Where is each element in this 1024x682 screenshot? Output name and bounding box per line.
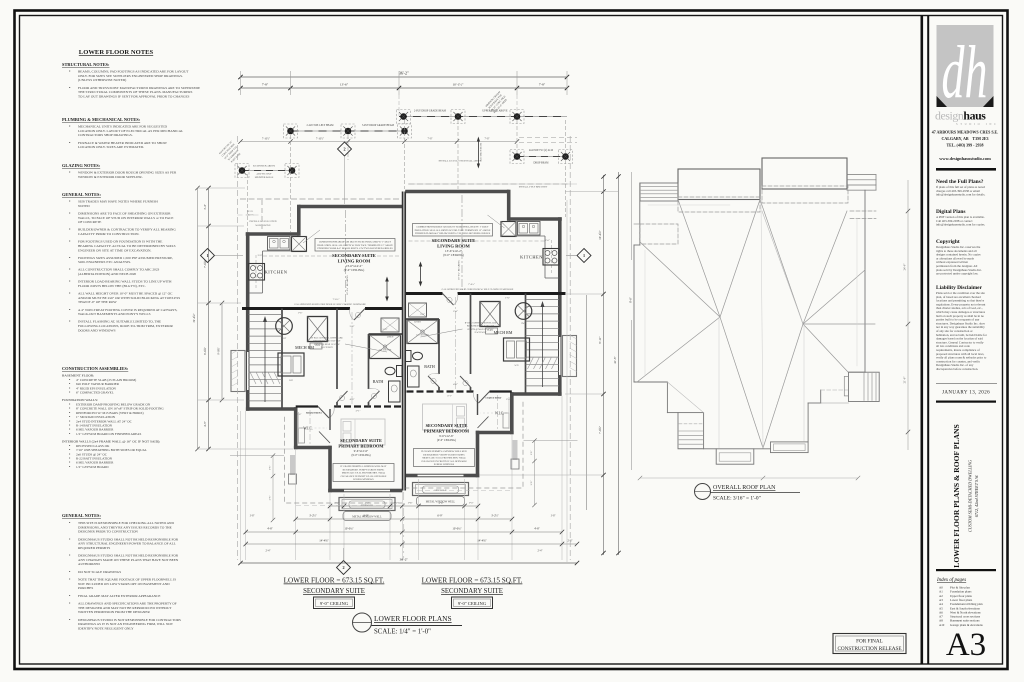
svg-text:JOINTS @ MAX 15'-0" OC: JOINTS @ MAX 15'-0" OC	[314, 343, 341, 346]
svg-text:7'-8": 7'-8"	[262, 83, 269, 87]
svg-text:FOR FINAL: FOR FINAL	[856, 639, 883, 645]
svg-text:(9'-0" CEILING): (9'-0" CEILING)	[443, 253, 464, 257]
svg-text:GENERAL NOTES:: GENERAL NOTES:	[62, 513, 101, 518]
svg-text:4'-8": 4'-8"	[534, 527, 540, 531]
svg-text:ABOVE: ABOVE	[246, 214, 255, 217]
svg-text:AUTHORIZED: AUTHORIZED	[78, 562, 100, 566]
svg-text:7'-0¾": 7'-0¾"	[598, 425, 602, 434]
svg-text:W.I.C.: W.I.C.	[303, 427, 312, 431]
svg-text:W/D: W/D	[515, 365, 519, 367]
svg-text:BE REQUIRED. VERIFY EGRESS SIZ: BE REQUIRED. VERIFY EGRESS SIZING	[423, 454, 465, 456]
svg-text:1'-6": 1'-6"	[298, 312, 303, 315]
svg-text:LIVING ROOM: LIVING ROOM	[437, 244, 470, 249]
svg-text:FOUNDATION WALLS:: FOUNDATION WALLS:	[62, 398, 98, 402]
svg-text:2'-8": 2'-8"	[350, 325, 355, 328]
svg-text:DECK: DECK	[247, 211, 254, 213]
svg-text:9'-6"x12'-6": 9'-6"x12'-6"	[439, 434, 454, 438]
svg-text:WALK-OUT BASEMENTS AND PONY'S: WALK-OUT BASEMENTS AND PONY'S WELLS	[78, 312, 151, 316]
svg-text:2x6 @ 16" (UNO): 2x6 @ 16" (UNO)	[485, 397, 501, 400]
svg-text:24'-0": 24'-0"	[904, 264, 907, 271]
svg-text:10'-0¼": 10'-0¼"	[452, 527, 461, 531]
svg-text:2: 2	[342, 565, 344, 570]
svg-text:3'-1": 3'-1"	[356, 410, 361, 413]
svg-text:DESIGNER PRIOR TO CONSTRUCTION: DESIGNER PRIOR TO CONSTRUCTION	[78, 530, 138, 534]
svg-text:IDENTIFY/NOTE NEGLIGENT ONLY: IDENTIFY/NOTE NEGLIGENT ONLY	[78, 627, 134, 631]
svg-text:1'-8": 1'-8"	[269, 466, 272, 471]
svg-text:7'-8": 7'-8"	[485, 138, 490, 141]
svg-text:(9'-0" CEILING): (9'-0" CEILING)	[344, 268, 365, 272]
svg-text:A3: A3	[946, 627, 986, 663]
svg-text:PORCHES: PORCHES	[78, 586, 93, 590]
svg-text:GLAZING NOTES:: GLAZING NOTES:	[62, 163, 101, 168]
svg-text:OVERALL ROOF PLAN: OVERALL ROOF PLAN	[713, 485, 776, 491]
svg-text:(UNLESS OTHERWISE NOTED): (UNLESS OTHERWISE NOTED)	[78, 78, 126, 82]
svg-text:2-2x8 TOP 2-PLY BEAM: 2-2x8 TOP 2-PLY BEAM	[307, 124, 335, 127]
svg-text:14'-4¾": 14'-4¾"	[477, 539, 487, 543]
svg-text:2'-0": 2'-0"	[545, 239, 550, 242]
svg-text:LIVING ROOM: LIVING ROOM	[338, 259, 371, 264]
svg-text:are protected under copyright: are protected under copyright law.	[936, 272, 979, 276]
svg-text:2'-4": 2'-4"	[266, 550, 271, 553]
svg-text:INTERIOR WALLS (2x4 FRAME WALL: INTERIOR WALLS (2x4 FRAME WALL @ 16" OC …	[62, 440, 160, 444]
svg-text:BATH: BATH	[373, 379, 384, 384]
svg-text:EACH WAY: EACH WAY	[475, 331, 487, 334]
svg-text:3-PLY DROP GRADE BEAM: 3-PLY DROP GRADE BEAM	[362, 124, 395, 127]
svg-text:MECH RM: MECH RM	[494, 330, 513, 335]
svg-text:THAN 8'-0" OF THE ROW: THAN 8'-0" OF THE ROW	[78, 300, 117, 304]
svg-text:1'-8": 1'-8"	[530, 451, 533, 456]
svg-text:36'-2": 36'-2"	[399, 71, 409, 76]
svg-text:CONTRACTORS SHOP DRAWINGS.: CONTRACTORS SHOP DRAWINGS.	[78, 133, 133, 137]
svg-text:PRIMARY BEDROOM: PRIMARY BEDROOM	[424, 429, 470, 434]
svg-text:DOORS AND WINDOWS: DOORS AND WINDOWS	[78, 328, 116, 332]
svg-text:NOTED: NOTED	[78, 204, 90, 208]
svg-text:3'-2½": 3'-2½"	[309, 515, 316, 518]
svg-text:W.I.C.: W.I.C.	[495, 412, 504, 416]
svg-text:PLUMBING & MECHANICAL NOTES:: PLUMBING & MECHANICAL NOTES:	[62, 117, 141, 122]
svg-text:2'-6": 2'-6"	[506, 398, 511, 401]
svg-text:5'-0": 5'-0"	[420, 313, 425, 316]
svg-text:INSTALL 2x6 LVL2 STUD WALL ABO: INSTALL 2x6 LVL2 STUD WALL ABOVE	[439, 160, 482, 163]
svg-text:3'-1": 3'-1"	[447, 395, 452, 398]
svg-text:BATH: BATH	[424, 364, 435, 369]
svg-text:7'-6¾": 7'-6¾"	[468, 283, 475, 286]
svg-text:A10: A10	[939, 623, 945, 627]
svg-text:www.designhausstudio.com: www.designhausstudio.com	[939, 156, 991, 161]
svg-text:REQUIRED PERMITS: REQUIRED PERMITS	[78, 546, 110, 550]
svg-text:Index of pages: Index of pages	[936, 578, 966, 583]
svg-text:KITCHEN: KITCHEN	[265, 270, 288, 275]
svg-text:1/2" GYPSUM BOARD ON FINISHED: 1/2" GYPSUM BOARD ON FINISHED AREAS	[76, 432, 142, 436]
svg-text:21'-0": 21'-0"	[904, 377, 907, 384]
svg-text:LINEN: LINEN	[414, 322, 421, 324]
svg-text:HWT: HWT	[521, 323, 526, 325]
svg-text:9'-11": 9'-11"	[598, 336, 602, 344]
svg-text:INSTALL 2x6 LVL2 STUD: INSTALL 2x6 LVL2 STUD	[250, 220, 277, 223]
svg-text:SECONDARY SUITE: SECONDARY SUITE	[432, 238, 476, 243]
svg-text:7'-6¾": 7'-6¾"	[333, 298, 340, 301]
svg-text:4'-0": 4'-0"	[350, 398, 355, 401]
svg-text:16'-0¾" BEARING: 16'-0¾" BEARING	[458, 260, 461, 280]
svg-text:1'-6": 1'-6"	[408, 502, 413, 505]
svg-text:TEL. (403) 399 - 2938: TEL. (403) 399 - 2938	[947, 143, 984, 148]
svg-text:FINAL GRADE MAY ALTER EXTERIOR: FINAL GRADE MAY ALTER EXTERIOR APPEARANC…	[78, 594, 160, 598]
svg-text:6'-9": 6'-9"	[437, 515, 442, 518]
svg-text:KITCHEN: KITCHEN	[520, 255, 543, 260]
svg-text:CLEARANCE IN FRONT OF ALL OPEN: CLEARANCE IN FRONT OF ALL OPENABLE	[341, 475, 387, 478]
svg-text:IF GRADE PERMITS A WINDOW WELL: IF GRADE PERMITS A WINDOW WELL MAY	[341, 465, 387, 468]
svg-text:SPLINTER BALLS: SPLINTER BALLS	[255, 176, 274, 179]
svg-text:1: 1	[206, 253, 208, 258]
svg-text:CLEARANCE IN FRONT OF ALL OPEN: CLEARANCE IN FRONT OF ALL OPENABLE	[421, 460, 467, 463]
svg-text:ENGINEER ON SITE AT TIME OF EX: ENGINEER ON SITE AT TIME OF EXCAVATION.	[78, 248, 152, 252]
svg-text:LOWER FLOOR PLANS & ROOF PLANS: LOWER FLOOR PLANS & ROOF PLANS	[952, 424, 961, 567]
svg-text:9'-0¾": 9'-0¾"	[218, 347, 221, 354]
svg-text:10'-4¾": 10'-4¾"	[598, 229, 602, 239]
svg-text:1'-3": 1'-3"	[469, 502, 474, 505]
svg-text:9'-0¾": 9'-0¾"	[203, 347, 207, 355]
svg-text:6x6 UP DECK ABOVE: 6x6 UP DECK ABOVE	[253, 165, 276, 168]
svg-text:JOINTS @ MAX 15'-0" OC: JOINTS @ MAX 15'-0" OC	[467, 328, 494, 331]
svg-text:7'-10½": 7'-10½"	[262, 138, 270, 141]
svg-text:WALL ABOVE: WALL ABOVE	[255, 224, 271, 227]
svg-text:4x10 DROP BEAM: 4x10 DROP BEAM	[480, 143, 483, 161]
svg-text:6'-9": 6'-9"	[363, 515, 368, 518]
svg-text:3'-2½": 3'-2½"	[491, 515, 498, 518]
svg-text:4'-5": 4'-5"	[203, 421, 207, 427]
svg-text:5'-0": 5'-0"	[383, 328, 388, 331]
svg-text:EGRESS WINDOWS: EGRESS WINDOWS	[353, 479, 374, 481]
svg-text:7'-10½": 7'-10½"	[316, 138, 324, 141]
svg-text:IF RSA CONTROL JOINTS ARE: IF RSA CONTROL JOINTS ARE	[311, 337, 343, 340]
svg-text:OF CONCRETE: OF CONCRETE	[78, 220, 101, 224]
svg-text:CONSTRUCTION RELEASE: CONSTRUCTION RELEASE	[837, 646, 901, 652]
svg-text:7'-8": 7'-8"	[539, 83, 546, 87]
svg-text:LINEN: LINEN	[387, 337, 394, 339]
svg-text:LOWER FLOOR = 673.15 SQ.FT.: LOWER FLOOR = 673.15 SQ.FT.	[422, 577, 523, 585]
svg-text:3'x5' SHOWER: 3'x5' SHOWER	[379, 350, 392, 352]
svg-text:16'-0¾" BEARING: 16'-0¾" BEARING	[346, 275, 349, 295]
svg-text:LOCATION ONLY. SIZES ARE ESTIM: LOCATION ONLY. SIZES ARE ESTIMATED.	[78, 145, 144, 149]
svg-text:SCALE: 1/4" = 1'-0": SCALE: 1/4" = 1'-0"	[374, 629, 431, 636]
svg-text:designhaus: designhaus	[935, 109, 986, 123]
svg-text:REQUIRED USE SAW CUT: REQUIRED USE SAW CUT	[467, 325, 495, 328]
svg-text:4 LW TO 2 PLY: 4 LW TO 2 PLY	[256, 174, 271, 176]
svg-text:MEETS ABC 9.9.10. PROVIDE MIN.: MEETS ABC 9.9.10. PROVIDE MIN. 760mm	[422, 457, 466, 460]
svg-text:3'-8": 3'-8"	[530, 481, 533, 486]
svg-text:BE REQUIRED. VERIFY EGRESS SIZ: BE REQUIRED. VERIFY EGRESS SIZING	[343, 469, 385, 471]
svg-text:REQUIRED USE SAW CUT: REQUIRED USE SAW CUT	[313, 340, 341, 343]
svg-text:SECONDARY SUITE: SECONDARY SUITE	[332, 253, 376, 258]
svg-text:INSTALL 2-PLY RIM JOIST: INSTALL 2-PLY RIM JOIST	[519, 186, 548, 189]
svg-text:(9'-0" CEILING): (9'-0" CEILING)	[437, 439, 456, 442]
svg-text:IF RSA CONTROL JOINTS ARE: IF RSA CONTROL JOINTS ARE	[465, 322, 497, 325]
svg-text:SOIL ENGINEERS ETC ANALYSIS.: SOIL ENGINEERS ETC ANALYSIS.	[78, 260, 131, 264]
svg-text:CAPACITY PRIOR TO CONSTRUCTION: CAPACITY PRIOR TO CONSTRUCTION.	[78, 232, 139, 236]
svg-text:7'-8": 7'-8"	[428, 138, 433, 141]
svg-text:1: 1	[583, 253, 585, 258]
svg-text:47 ARBOURS MEADOWS CRES S.E.: 47 ARBOURS MEADOWS CRES S.E.	[932, 130, 998, 135]
svg-text:PRIMARY BEDROOM: PRIMARY BEDROOM	[338, 444, 384, 449]
svg-text:LOWER FLOOR = 673.15 SQ.FT.: LOWER FLOOR = 673.15 SQ.FT.	[284, 577, 385, 585]
svg-text:DROP BEAM: DROP BEAM	[534, 162, 550, 165]
svg-text:6" COMPACTED GRAVEL: 6" COMPACTED GRAVEL	[76, 391, 114, 395]
svg-text:4'-0": 4'-0"	[453, 383, 458, 386]
svg-text:1/2" GYPSUM BOARD: 1/2" GYPSUM BOARD	[76, 465, 109, 469]
svg-text:14'-4¾": 14'-4¾"	[319, 539, 329, 543]
svg-text:GAS APPROVED SOLID CORE DOOR W: GAS APPROVED SOLID CORE DOOR W/ SELF CLO…	[442, 288, 514, 291]
svg-text:41'-5": 41'-5"	[613, 356, 617, 364]
svg-text:9'-6"x12'-6": 9'-6"x12'-6"	[354, 449, 369, 453]
svg-text:FINISHED FLOOR & 6" BELOW JOIS: FINISHED FLOOR & 6" BELOW JOISTS. C/W TW…	[415, 232, 491, 235]
svg-text:2: 2	[343, 147, 345, 152]
svg-text:W/D: W/D	[289, 380, 293, 382]
svg-text:1'-6": 1'-6"	[505, 297, 510, 300]
svg-text:CALGARY, AB T3M 2E3: CALGARY, AB T3M 2E3	[941, 136, 988, 141]
svg-text:GENERAL NOTES:: GENERAL NOTES:	[62, 192, 101, 197]
svg-text:FINISHED FLOOR & 6" BELOW JOIS: FINISHED FLOOR & 6" BELOW JOISTS. C/W TW…	[317, 247, 393, 250]
svg-text:2'-0": 2'-0"	[258, 254, 263, 257]
svg-text:info@designhausstudio.com for: info@designhausstudio.com for details.	[936, 193, 985, 197]
svg-text:13'-6": 13'-6"	[340, 83, 349, 87]
svg-text:IF GRADE PERMITS A WINDOW WELL: IF GRADE PERMITS A WINDOW WELL MAY	[421, 450, 467, 453]
svg-text:SECONDARY SUITE: SECONDARY SUITE	[340, 438, 382, 443]
svg-text:4'-4": 4'-4"	[439, 502, 444, 505]
svg-text:JANUARY 13, 2026: JANUARY 13, 2026	[942, 391, 990, 396]
svg-text:9'-0" CEILING: 9'-0" CEILING	[458, 601, 487, 606]
svg-text:10'-1½": 10'-1½"	[453, 83, 464, 87]
svg-text:CUSTOM SEMI-DETACHED DWELLING: CUSTOM SEMI-DETACHED DWELLING	[968, 460, 973, 532]
svg-text:BASEMENT FLOOR:: BASEMENT FLOOR:	[62, 374, 94, 378]
svg-text:WINDOW & EXTERIOR DOOR SUPPLIE: WINDOW & EXTERIOR DOOR SUPPLIER.	[78, 175, 143, 179]
svg-text:36'-2": 36'-2"	[400, 558, 409, 562]
svg-text:4'-8": 4'-8"	[267, 527, 273, 531]
svg-text:10'-0¼": 10'-0¼"	[344, 527, 353, 531]
svg-text:info@designhausstudio.com for: info@designhausstudio.com for copies.	[936, 223, 985, 227]
svg-text:4x4 POST W/ (2) 2x10: 4x4 POST W/ (2) 2x10	[529, 149, 554, 152]
svg-text:SECONDARY SUITE: SECONDARY SUITE	[426, 423, 468, 428]
svg-text:MEETS ABC 9.9.10. PROVIDE MIN.: MEETS ABC 9.9.10. PROVIDE MIN. 760mm	[342, 472, 386, 475]
svg-text:2'-4": 2'-4"	[538, 550, 543, 553]
svg-text:1'-8": 1'-8"	[551, 515, 556, 518]
svg-text:2-PLY DROP GRADE BEAM: 2-PLY DROP GRADE BEAM	[414, 110, 447, 113]
svg-text:GAS APPROVED SOLID CORE DOOR W: GAS APPROVED SOLID CORE DOOR W/ SELF CLO…	[294, 303, 366, 306]
svg-text:9'-0" CEILING: 9'-0" CEILING	[320, 601, 349, 606]
svg-text:SECONDARY SUITE: SECONDARY SUITE	[441, 588, 503, 595]
svg-text:2'-6": 2'-6"	[297, 413, 302, 416]
svg-text:discrepancies before construct: discrepancies before construction.	[936, 367, 978, 371]
svg-text:32'-4¾": 32'-4¾"	[192, 313, 196, 322]
svg-text:LOWER FLOOR NOTES: LOWER FLOOR NOTES	[79, 49, 154, 56]
svg-text:HWT: HWT	[282, 338, 287, 340]
svg-text:dh: dh	[942, 32, 988, 114]
svg-text:LOWER FLOOR PLANS: LOWER FLOOR PLANS	[374, 614, 452, 623]
svg-text:STRUCTURAL NOTES:: STRUCTURAL NOTES:	[62, 62, 110, 67]
svg-text:(ALBERTA EDITION) AND NECB 202: (ALBERTA EDITION) AND NECB 2020	[78, 272, 136, 276]
svg-text:SUB TRADES MAY HAVE NOTES WHER: SUB TRADES MAY HAVE NOTES WHERE FURNISH	[78, 200, 158, 204]
svg-text:2x6 @ 16" (UNO): 2x6 @ 16" (UNO)	[306, 412, 322, 415]
svg-text:S T U D I O I N C: S T U D I O I N C	[956, 123, 997, 126]
svg-text:CONSTRUCTION ASSEMBLIES:: CONSTRUCTION ASSEMBLIES:	[62, 366, 129, 371]
svg-text:TO LAY OUT DRAWINGS IF SENT FO: TO LAY OUT DRAWINGS IF SENT FOR APPROVAL…	[78, 94, 190, 98]
svg-text:SECONDARY SUITE: SECONDARY SUITE	[303, 588, 365, 595]
svg-text:EACH WAY: EACH WAY	[321, 346, 333, 349]
svg-text:MECH RM: MECH RM	[295, 345, 314, 350]
svg-text:2'-8": 2'-8"	[453, 310, 458, 313]
svg-text:3'-8": 3'-8"	[269, 496, 272, 501]
svg-text:EGRESS WINDOWS: EGRESS WINDOWS	[434, 464, 455, 466]
svg-text:DO NOT SCALE DRAWINGS: DO NOT SCALE DRAWINGS	[78, 570, 121, 574]
svg-text:(9'-0" CEILING): (9'-0" CEILING)	[351, 454, 370, 457]
svg-text:WRITTEN PERMISSION FROM THE DE: WRITTEN PERMISSION FROM THE DESIGNER	[78, 610, 150, 614]
svg-text:8'-6": 8'-6"	[629, 296, 633, 303]
svg-text:1'-8": 1'-8"	[250, 515, 255, 518]
svg-text:3'-4": 3'-4"	[203, 204, 207, 210]
svg-text:SCALE: 3/16" = 1'-0": SCALE: 3/16" = 1'-0"	[713, 496, 761, 502]
